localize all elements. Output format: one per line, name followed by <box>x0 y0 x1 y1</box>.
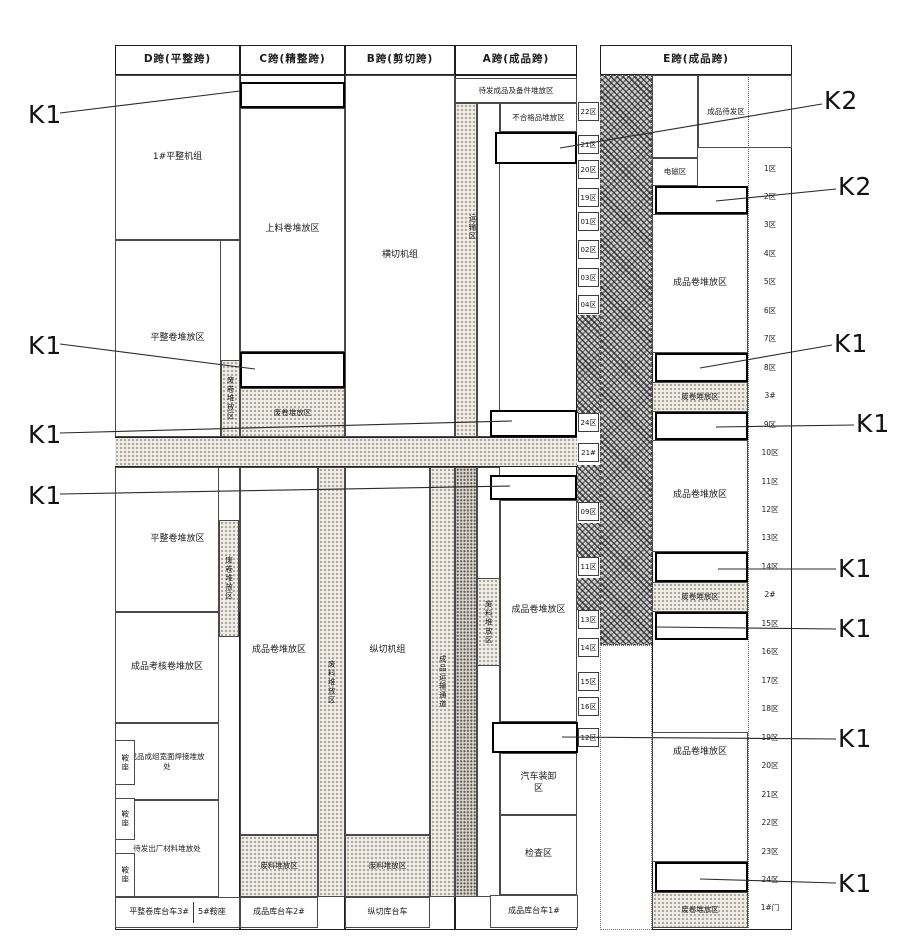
box-e-scrap-2-label: 废卷堆放区 <box>681 592 719 602</box>
k-annotation-label: K1 <box>856 409 890 438</box>
box-a-marked-area-k1-lower <box>492 722 578 753</box>
vstrip-scrap-coil-upper-label: 废卷堆放区 <box>227 376 235 421</box>
box-e-scrap-1-label: 废卷堆放区 <box>681 392 719 402</box>
vstrip-a-transport-upper: 运输区 <box>455 103 477 437</box>
box-cross-cut-unit-label: 横切机组 <box>382 250 418 262</box>
box-e-marked-area-k1-2 <box>655 412 748 440</box>
e-zone-label: 7区 <box>749 330 791 348</box>
vstrip-c-scrap-label: 废料堆放区 <box>328 660 336 705</box>
hatched-rail-strip <box>600 75 652 645</box>
box-reject-area-label: 不合格品堆放区 <box>512 113 565 123</box>
box-inspection-area: 检查区 <box>500 815 577 895</box>
box-e-marked-area-k1-3 <box>655 552 748 582</box>
corridor-zone-label: 13区 <box>578 610 599 629</box>
box-e-finished-coil-1: 成品卷堆放区 <box>652 214 748 353</box>
box-c-scrap-mid: 废卷堆放区 <box>240 388 345 437</box>
box-magnet-area: 电磁区 <box>652 158 698 186</box>
k-annotation-label: K1 <box>28 420 62 449</box>
box-saddle-2-label: 鞍座 <box>121 810 129 828</box>
box-e-scrap-2: 废卷堆放区 <box>652 582 748 612</box>
e-zone-label: 20区 <box>749 757 791 775</box>
box-magnet-area-label: 电磁区 <box>664 167 687 177</box>
box-e-finished-coil-2-label: 成品卷堆放区 <box>673 490 727 502</box>
header-span-a-label: A跨(成品跨) <box>483 53 550 67</box>
corridor-zone-label: 01区 <box>578 212 599 231</box>
box-truck-loading-label: 汽车装卸区 <box>519 772 558 795</box>
corridor-zone-label: 12区 <box>578 728 599 747</box>
k-annotation-label: K2 <box>838 172 872 201</box>
corridor-zone-label: 16区 <box>578 697 599 716</box>
corridor-hatch-2 <box>577 465 600 503</box>
box-e-top-left <box>652 75 698 158</box>
vstrip-a-scrap: 废料堆放区 <box>477 578 500 666</box>
e-zone-label: 3区 <box>749 216 791 234</box>
box-b-scrap-bottom: 废料堆放区 <box>345 835 430 897</box>
box-c-marked-area-top <box>240 82 345 108</box>
box-c-scrap-bottom: 废料堆放区 <box>240 835 318 897</box>
box-saddle-1: 鞍座 <box>115 740 135 785</box>
corridor-zone-label: 20区 <box>578 160 599 179</box>
e-zone-label: 17区 <box>749 671 791 689</box>
e-zone-label: 22区 <box>749 814 791 832</box>
box-a-ready-spares-label: 待发成品及备件堆放区 <box>479 86 554 96</box>
e-zone-label: 10区 <box>749 444 791 462</box>
corridor-hatch-3 <box>577 523 600 557</box>
e-zone-label: 13区 <box>749 529 791 547</box>
box-outgoing-material-label: 待发出厂材料堆放处 <box>133 844 201 854</box>
box-e-scrap-3: 废卷堆放区 <box>652 892 748 928</box>
corridor-zone-label: 11区 <box>578 557 599 576</box>
e-zone-label: 5区 <box>749 273 791 291</box>
vstrip-b-transport: 成品运输通道 <box>430 467 455 897</box>
vstrip-a-transport-lower <box>455 467 477 897</box>
box-a-finished-coil-label: 成品卷堆放区 <box>511 605 565 617</box>
a-white-strip-lower <box>477 467 500 897</box>
e-zone-label: 2# <box>749 586 791 604</box>
box-a-transfer-car-label: 成品库台车1# <box>508 906 560 916</box>
box-c-scrap-mid-label: 废卷堆放区 <box>274 408 312 418</box>
box-truck-loading: 汽车装卸区 <box>500 753 577 815</box>
e-zone-label: 14区 <box>749 557 791 575</box>
vstrip-b-transport-label: 成品运输通道 <box>439 655 447 709</box>
corridor-zone-label: 02区 <box>578 240 599 259</box>
e-zone-label: 11区 <box>749 472 791 490</box>
box-saddle-2: 鞍座 <box>115 798 135 840</box>
header-span-e-label: E跨(成品跨) <box>663 53 729 67</box>
e-zone-label: 8区 <box>749 358 791 376</box>
box-assessment-coil: 成品考核卷堆放区 <box>115 612 219 723</box>
k-annotation-label: K1 <box>838 554 872 583</box>
e-zone-label: 1#门 <box>749 899 791 917</box>
box-leveling-unit-1-label: 1#平整机组 <box>153 152 202 164</box>
box-c-scrap-bottom-label: 废料堆放区 <box>260 861 298 871</box>
k-annotation-label: K1 <box>838 869 872 898</box>
d-bottom-separator <box>193 902 194 922</box>
box-slitting-unit: 纵切机组 <box>345 467 430 835</box>
box-reject-area: 不合格品堆放区 <box>500 103 577 132</box>
box-e-finished-coil-3: 成品卷堆放区 <box>652 732 748 862</box>
corridor-zone-label: 21区 <box>578 135 599 154</box>
k-annotation-label: K1 <box>28 481 62 510</box>
corridor-zone-label: 04区 <box>578 295 599 314</box>
box-a-marked-area-k1-upper <box>490 410 577 437</box>
rail-strip-lower <box>600 645 652 930</box>
box-d-transfer-car: 平整卷库台车3# 5#鞍座 <box>115 897 240 928</box>
header-span-b: B跨(剪切跨) <box>345 45 455 75</box>
header-span-a: A跨(成品跨) <box>455 45 577 75</box>
e-zone-label: 24区 <box>749 871 791 889</box>
factory-layout-figure: D跨(平整跨) C跨(精整跨) B跨(剪切跨) A跨(成品跨) E跨(成品跨) … <box>0 0 914 941</box>
corridor-zone-label: 22区 <box>578 102 599 121</box>
vstrip-c-scrap: 废料堆放区 <box>318 467 345 897</box>
box-e-scrap-1: 废卷堆放区 <box>652 382 748 412</box>
e-zone-label: 21区 <box>749 785 791 803</box>
box-e-marked-area-k1-4 <box>655 612 748 640</box>
box-a-finished-coil: 成品卷堆放区 <box>500 500 577 722</box>
k-annotation-label: K2 <box>824 86 858 115</box>
corridor-zone-label: 15区 <box>578 672 599 691</box>
box-c-finished-coil-label: 成品卷堆放区 <box>252 645 306 657</box>
corridor-zone-label: 21# <box>578 443 599 462</box>
box-assessment-coil-label: 成品考核卷堆放区 <box>131 662 203 674</box>
box-leveling-unit-1: 1#平整机组 <box>115 75 240 240</box>
box-c-finished-coil: 成品卷堆放区 <box>240 467 318 835</box>
box-b-scrap-bottom-label: 废料堆放区 <box>369 861 407 871</box>
box-inspection-area-label: 检查区 <box>525 849 552 861</box>
d-transfer-car-label: 平整卷库台车3# <box>129 907 189 917</box>
e-zone-label: 6区 <box>749 301 791 319</box>
e-zone-label: 9区 <box>749 415 791 433</box>
corridor-hatch-4 <box>577 578 600 610</box>
box-saddle-3: 鞍座 <box>115 853 135 897</box>
box-finished-ready: 成品待发区 <box>698 75 792 148</box>
vstrip-scrap-coil-lower: 废卷堆放区 <box>219 520 239 637</box>
vstrip-a-transport-label: 运输区 <box>456 214 476 241</box>
d-saddle-5-label: 5#鞍座 <box>198 907 226 917</box>
vstrip-scrap-coil-lower-label: 废卷堆放区 <box>225 556 233 601</box>
corridor-zone-label: 24区 <box>578 413 599 432</box>
box-slitting-unit-label: 纵切机组 <box>369 645 405 657</box>
k-annotation-label: K1 <box>834 329 868 358</box>
header-span-b-label: B跨(剪切跨) <box>367 53 434 67</box>
corridor-zone-label: 09区 <box>578 502 599 521</box>
box-e-marked-area-k1-5 <box>655 862 748 892</box>
box-e-finished-coil-3-label: 成品卷堆放区 <box>653 747 747 759</box>
box-leveled-coil-upper-label: 平整卷堆放区 <box>150 333 204 345</box>
box-e-scrap-3-label: 废卷堆放区 <box>681 905 719 915</box>
header-span-d-label: D跨(平整跨) <box>144 53 211 67</box>
box-leveled-coil-lower-label: 平整卷堆放区 <box>150 534 204 546</box>
box-e-marked-area-k1-1 <box>655 353 748 382</box>
e-zone-label: 16区 <box>749 643 791 661</box>
k-annotation-label: K1 <box>28 100 62 129</box>
corridor-zone-label: 19区 <box>578 188 599 207</box>
box-c-transfer-car: 成品库台车2# <box>240 897 318 928</box>
vstrip-a-scrap-label: 废料堆放区 <box>485 600 493 645</box>
k-annotation-label: K1 <box>838 724 872 753</box>
box-feed-coil: 上料卷堆放区 <box>240 108 345 352</box>
vstrip-scrap-coil-upper: 废卷堆放区 <box>221 360 240 437</box>
e-zone-label: 1区 <box>749 159 791 177</box>
box-a-transfer-car: 成品库台车1# <box>490 895 578 928</box>
corridor-hatch-1 <box>577 315 600 413</box>
box-c-marked-area-mid <box>240 352 345 388</box>
box-e-marked-area-k2 <box>655 186 748 214</box>
box-e-finished-coil-2: 成品卷堆放区 <box>652 440 748 552</box>
box-a-marked-area-k1-mid <box>490 475 577 500</box>
k-annotation-label: K1 <box>838 614 872 643</box>
e-zone-label: 23区 <box>749 842 791 860</box>
e-zone-label: 3# <box>749 387 791 405</box>
box-e-finished-coil-1-label: 成品卷堆放区 <box>673 278 727 290</box>
box-saddle-1-label: 鞍座 <box>121 754 129 772</box>
box-b-transfer-car-label: 纵切库台车 <box>368 907 408 917</box>
corridor-zone-label: 14区 <box>578 638 599 657</box>
e-zone-label: 19区 <box>749 728 791 746</box>
box-b-transfer-car: 纵切库台车 <box>345 897 430 928</box>
e-zone-label: 15区 <box>749 614 791 632</box>
e-zone-label: 18区 <box>749 700 791 718</box>
box-c-transfer-car-label: 成品库台车2# <box>253 907 305 917</box>
corridor-zone-label: 03区 <box>578 268 599 287</box>
header-span-e: E跨(成品跨) <box>600 45 792 75</box>
e-zone-label: 2区 <box>749 187 791 205</box>
e-zone-label: 4区 <box>749 244 791 262</box>
box-feed-coil-label: 上料卷堆放区 <box>265 224 319 236</box>
box-saddle-3-label: 鞍座 <box>121 866 129 884</box>
header-span-c: C跨(精整跨) <box>240 45 345 75</box>
k-annotation-label: K1 <box>28 331 62 360</box>
transport-road <box>115 437 577 467</box>
box-cross-cut-unit: 横切机组 <box>345 75 455 437</box>
box-weld-stack-label: 成品成组宽面焊接堆放处 <box>126 752 208 772</box>
box-finished-ready-label: 成品待发区 <box>707 107 745 117</box>
box-a-ready-spares: 待发成品及备件堆放区 <box>455 78 577 103</box>
box-a-marked-area-k2 <box>495 132 577 164</box>
header-span-d: D跨(平整跨) <box>115 45 240 75</box>
header-span-c-label: C跨(精整跨) <box>259 53 325 67</box>
e-zone-label: 12区 <box>749 501 791 519</box>
